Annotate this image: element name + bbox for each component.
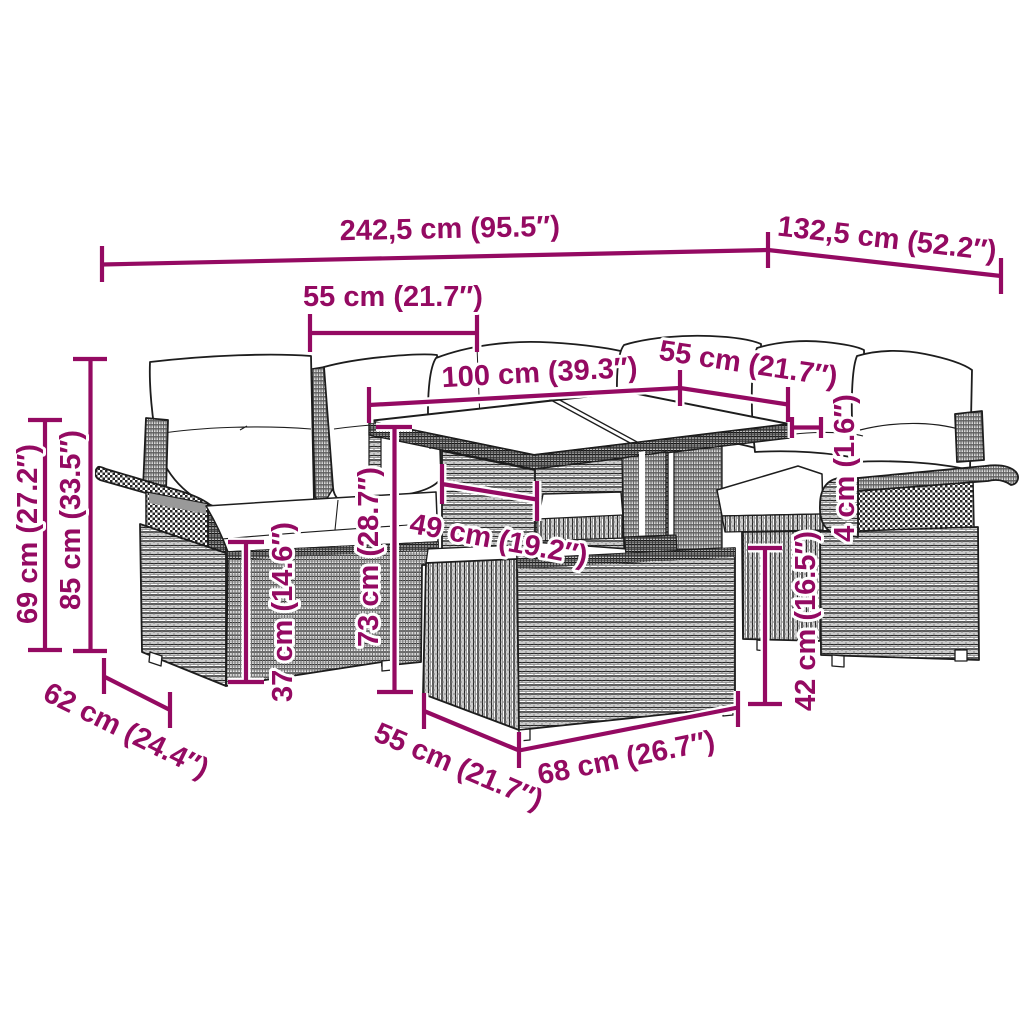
svg-text:55 cm (21.7″): 55 cm (21.7″) <box>303 281 483 313</box>
svg-text:73 cm (28.7″): 73 cm (28.7″) <box>353 467 385 647</box>
svg-text:242,5 cm (95.5″): 242,5 cm (95.5″) <box>339 211 560 248</box>
svg-text:85 cm (33.5″): 85 cm (33.5″) <box>55 430 87 610</box>
svg-text:69 cm (27.2″): 69 cm (27.2″) <box>12 444 44 624</box>
svg-text:4 cm (1.6″): 4 cm (1.6″) <box>829 394 861 542</box>
svg-text:42 cm (16.5″): 42 cm (16.5″) <box>790 531 822 711</box>
svg-text:37 cm (14.6″): 37 cm (14.6″) <box>267 522 299 702</box>
